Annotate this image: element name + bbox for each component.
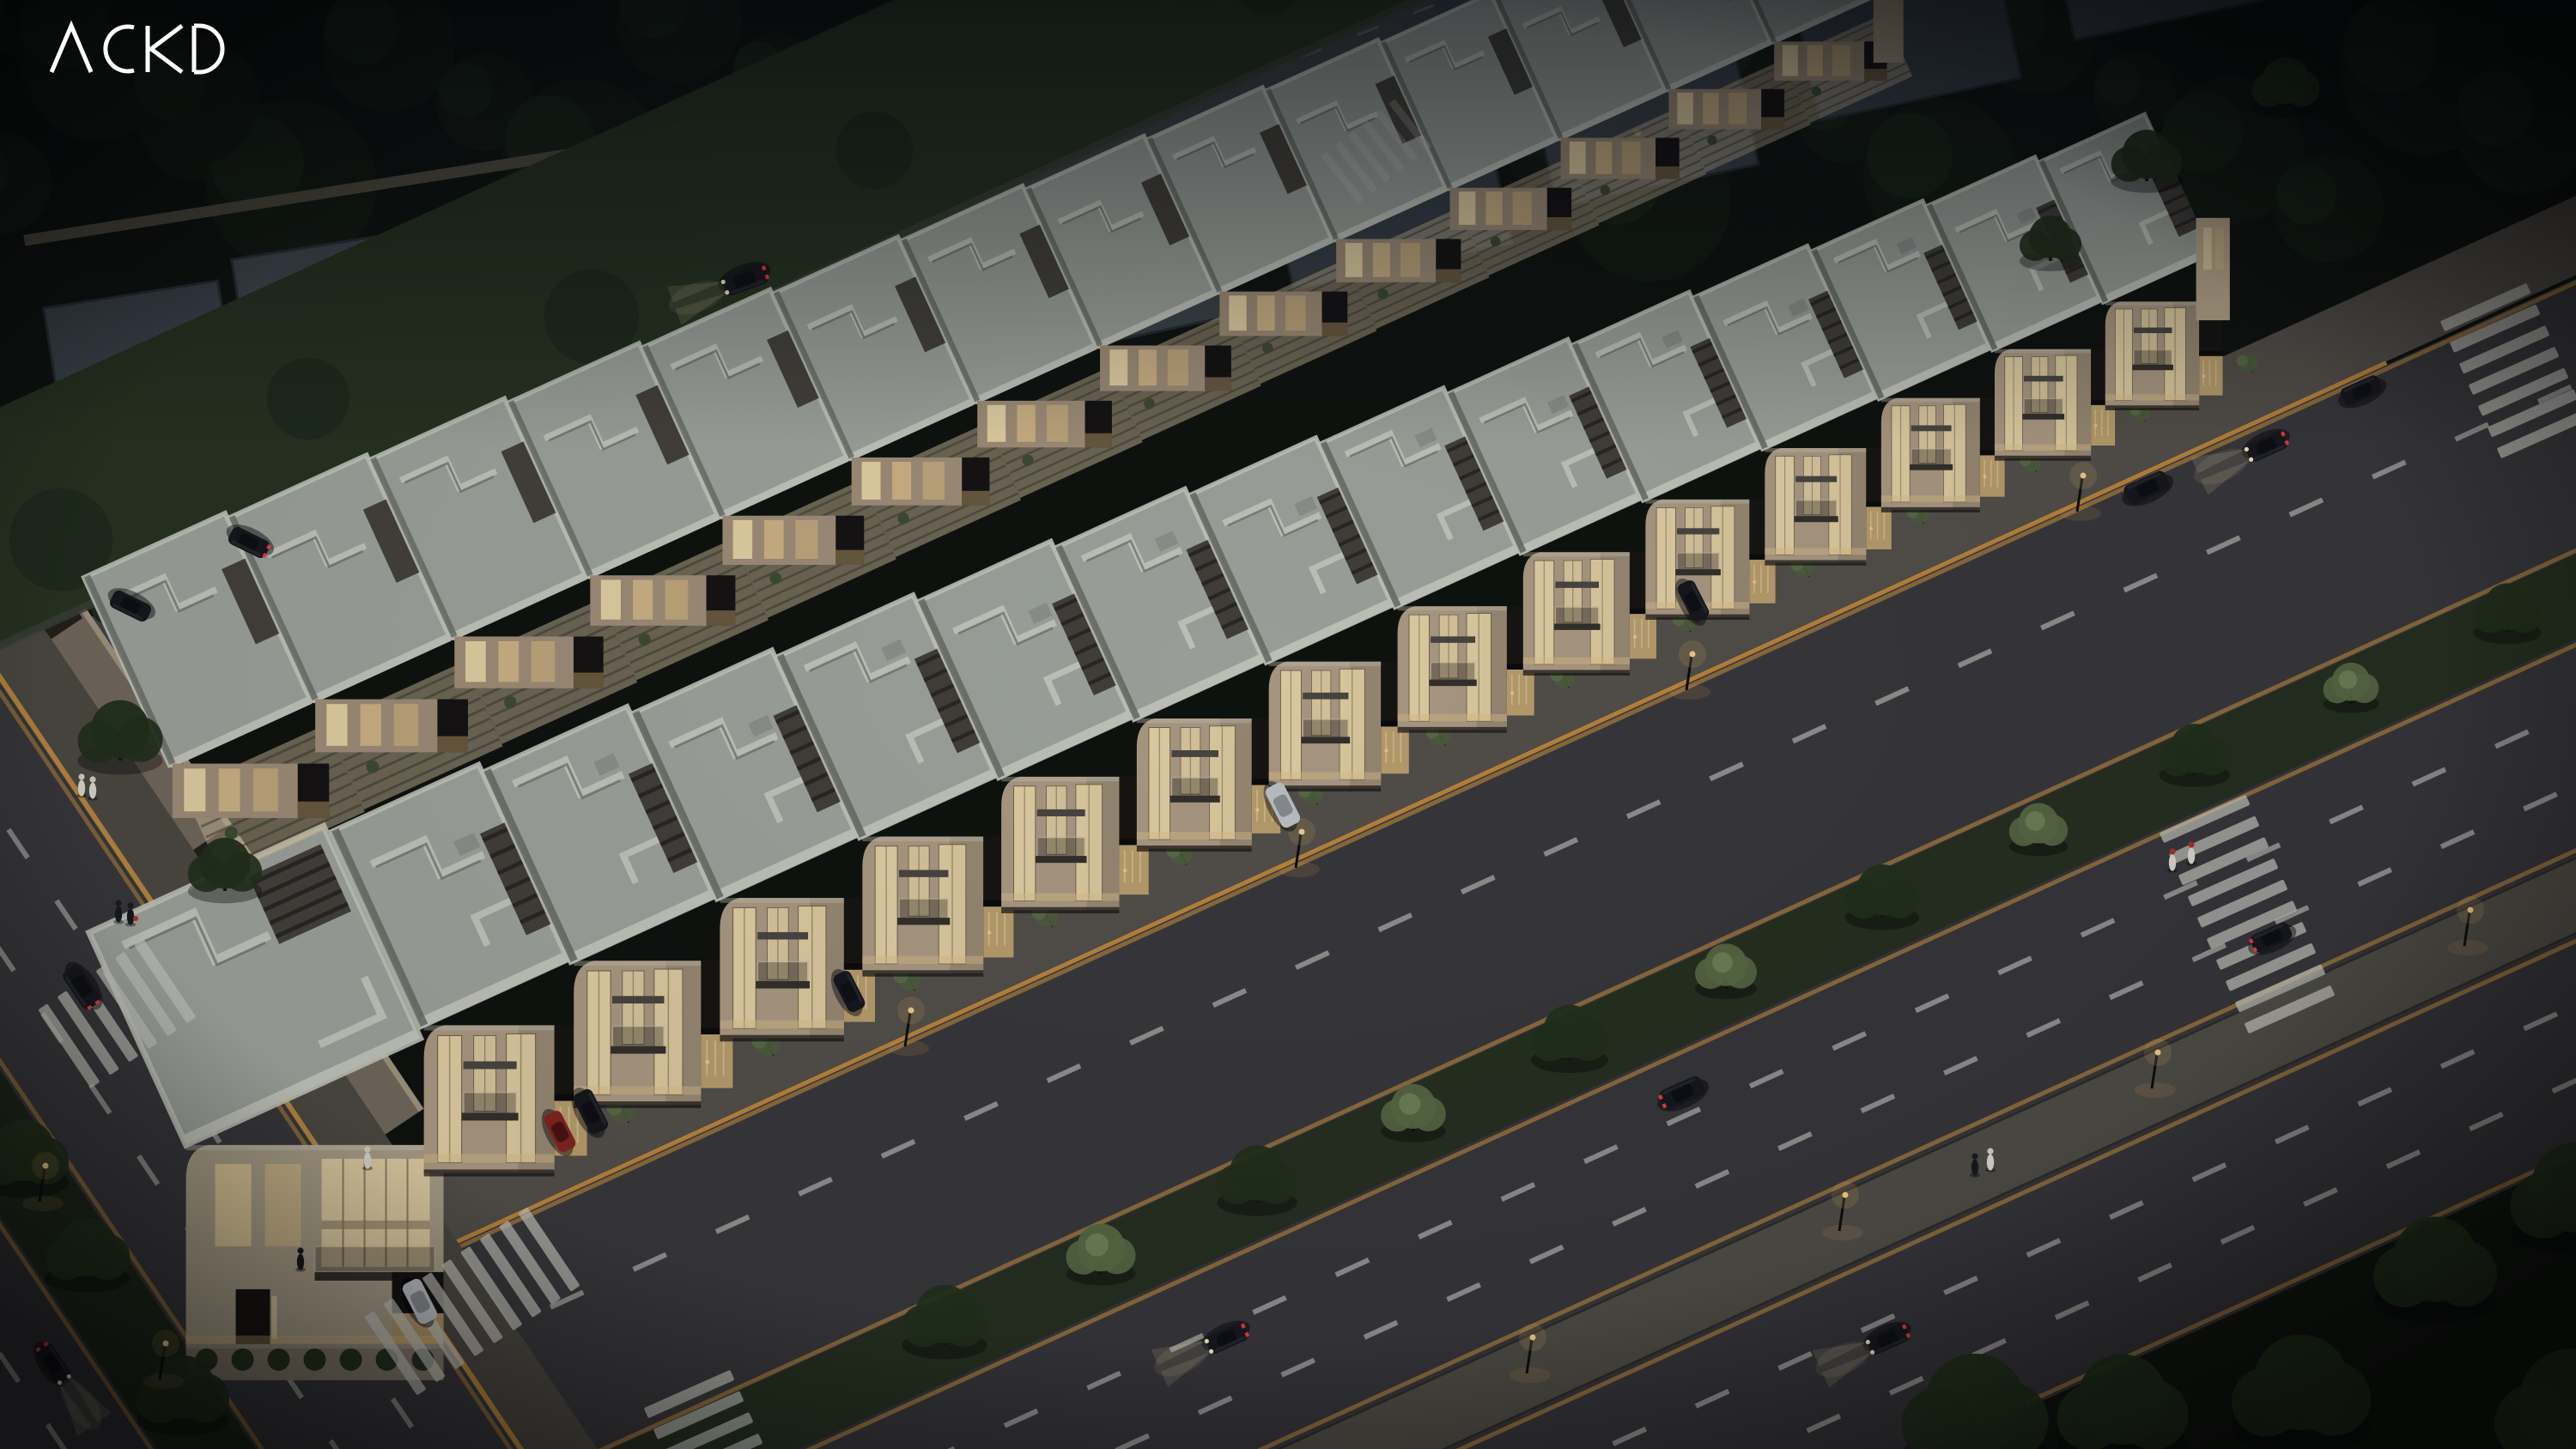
logo-letter-d (194, 26, 222, 72)
ackd-logo: ACKD (45, 17, 227, 85)
logo-letter-a (52, 26, 91, 72)
rendering-stage: ACKD (0, 0, 2576, 1449)
architectural-rendering (0, 0, 2576, 1449)
logo-letter-k (148, 26, 182, 72)
logo-letter-c (106, 27, 134, 71)
vignette (0, 0, 2576, 1449)
ackd-logo-mark (45, 17, 227, 81)
